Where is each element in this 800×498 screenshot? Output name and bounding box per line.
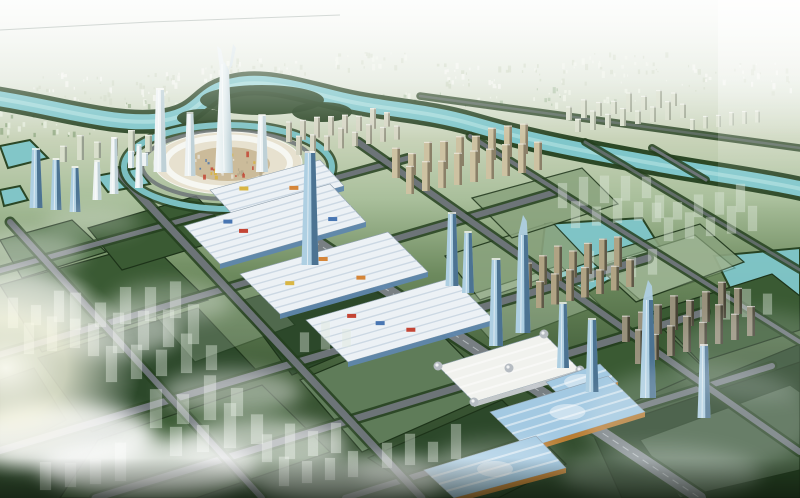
residential-slab-roof (581, 267, 589, 268)
residential-slab-roof (408, 153, 416, 154)
hall-roof-pattern (550, 404, 586, 420)
residential-slab-roof (686, 300, 694, 301)
distant-building (239, 171, 241, 174)
tower-roof (588, 318, 596, 320)
residential-slab-shade (427, 161, 430, 191)
distant-building (203, 175, 206, 180)
residential-slab-roof (470, 150, 478, 151)
cloud (44, 208, 140, 236)
tower-roof (305, 151, 316, 153)
residential-slab-shade (411, 166, 414, 194)
residential-slab-roof (614, 236, 622, 237)
residential-slab-roof (683, 316, 691, 317)
residential-slab-roof (486, 149, 494, 150)
residential-slab-shade (723, 282, 726, 318)
residential-slab-roof (596, 269, 604, 270)
residential-slab-shade (443, 161, 446, 188)
distant-building (199, 168, 201, 170)
ghost-building (558, 183, 567, 208)
residential-slab-shade (65, 146, 67, 162)
distant-building (213, 169, 214, 171)
hall-accent-sign (347, 314, 356, 318)
hall-accent-sign (328, 217, 337, 221)
hall-accent-sign (319, 257, 328, 261)
ghost-building (673, 202, 682, 219)
hall-accent-sign (356, 276, 365, 280)
ghost-building (206, 345, 217, 370)
residential-slab-shade (616, 266, 619, 291)
horizon-haze (0, 0, 800, 140)
ghost-building (579, 177, 588, 205)
residential-slab-roof (566, 269, 574, 270)
mall-dome-highlight (506, 365, 509, 368)
hall-accent-sign (239, 187, 248, 191)
cloud (162, 370, 302, 414)
residential-slab-shade (507, 144, 510, 176)
distant-building (208, 162, 210, 164)
residential-slab-roof (536, 281, 544, 282)
residential-slab-roof (734, 288, 742, 289)
distant-building (242, 174, 245, 178)
ghost-building (321, 321, 330, 349)
ghost-building (613, 198, 622, 223)
ghost-building (156, 350, 167, 376)
distant-building (231, 174, 233, 178)
residential-slab-shade (589, 243, 592, 274)
mall-dome-highlight (435, 363, 438, 366)
ghost-building (300, 332, 309, 352)
residential-slab-shade (656, 334, 659, 360)
hall-accent-sign (285, 281, 294, 285)
tower-roof (464, 231, 471, 233)
residential-slab-roof (60, 146, 67, 147)
tower-highlight (73, 168, 74, 212)
residential-slab-roof (424, 142, 432, 143)
residential-slab-shade (672, 325, 675, 356)
residential-slab-shade (541, 281, 544, 308)
mall-dome-highlight (471, 399, 474, 402)
ghost-building (706, 217, 715, 236)
distant-building (210, 172, 212, 175)
ghost-building (621, 176, 630, 201)
residential-slab-shade (556, 273, 559, 304)
residential-slab-roof (599, 239, 607, 240)
tower-highlight (561, 304, 562, 368)
tower-roof (559, 302, 566, 304)
residential-slab-roof (702, 291, 710, 292)
residential-slab-shade (99, 142, 101, 158)
distant-building (246, 152, 249, 158)
hall-accent-sign (223, 220, 232, 224)
residential-slab-shade (604, 239, 607, 271)
ghost-building (685, 212, 694, 238)
ghost-building (634, 202, 643, 220)
residential-slab-roof (534, 142, 542, 143)
residential-slab-shade (571, 269, 574, 301)
tower-roof (94, 160, 100, 162)
residential-slab-roof (440, 141, 448, 142)
ghost-building (694, 195, 703, 217)
ghost-building (150, 389, 162, 428)
residential-slab-shade (619, 236, 622, 267)
cloud (112, 282, 232, 322)
residential-slab-roof (670, 295, 678, 296)
residential-slab-shade (739, 288, 742, 314)
tower-highlight (113, 139, 114, 194)
residential-slab-roof (502, 144, 510, 145)
residential-slab-roof (622, 316, 630, 317)
residential-slab-shade (586, 267, 589, 298)
residential-slab-roof (569, 250, 577, 251)
distant-building (215, 176, 218, 180)
ghost-building (727, 206, 736, 233)
mall-dome-highlight (577, 367, 580, 370)
bottom-vignette (0, 458, 800, 498)
hall-accent-sign (376, 321, 385, 325)
tower-highlight (466, 233, 467, 293)
residential-slab-roof (128, 151, 134, 152)
ghost-building (571, 201, 580, 228)
tower-roof (492, 258, 501, 260)
residential-slab-shade (146, 153, 148, 166)
distant-building (197, 155, 199, 159)
tower-roof (32, 148, 40, 150)
hall-accent-sign (289, 186, 298, 190)
residential-slab-shade (631, 259, 634, 287)
residential-slab-roof (142, 153, 148, 154)
ghost-building (664, 218, 673, 241)
hall-accent-sign (406, 328, 415, 332)
residential-slab-roof (747, 306, 755, 307)
tower-highlight (54, 160, 55, 210)
distant-building (205, 159, 206, 162)
scene-canvas (0, 0, 800, 498)
residential-slab-shade (459, 153, 462, 185)
residential-slab-shade (659, 304, 662, 334)
residential-slab-roof (539, 255, 547, 256)
distant-building (237, 173, 238, 176)
residential-slab-roof (94, 142, 101, 143)
residential-slab-roof (718, 282, 726, 283)
residential-slab-roof (626, 259, 634, 260)
distant-building (211, 167, 214, 170)
residential-slab-roof (635, 329, 643, 330)
residential-slab-shade (675, 295, 678, 330)
residential-slab-shade (601, 269, 604, 294)
distant-building (238, 168, 239, 171)
residential-slab-roof (611, 266, 619, 267)
ghost-building (342, 329, 351, 347)
ghost-building (652, 203, 661, 222)
ghost-building (592, 207, 601, 226)
distant-building (235, 175, 236, 177)
residential-slab-shade (691, 300, 694, 326)
tower-roof (137, 144, 142, 146)
residential-slab-roof (422, 161, 430, 162)
masterplan-rendering (0, 0, 800, 498)
residential-slab-roof (584, 243, 592, 244)
residential-slab-shade (627, 316, 630, 342)
ghost-building (181, 334, 192, 373)
mall-dome-highlight (541, 331, 544, 334)
distant-building (233, 159, 234, 161)
residential-slab-shade (523, 143, 526, 173)
ghost-building (648, 249, 657, 274)
residential-slab-shade (475, 150, 478, 182)
tower-roof (448, 212, 456, 214)
hall-accent-sign (239, 229, 248, 233)
tower-roof (72, 166, 79, 168)
residential-slab-roof (654, 304, 662, 305)
residential-slab-roof (715, 304, 723, 305)
residential-slab-shade (491, 149, 494, 179)
residential-slab-roof (554, 246, 562, 247)
residential-slab-roof (518, 143, 526, 144)
residential-slab-roof (454, 153, 462, 154)
residential-slab-roof (551, 273, 559, 274)
residential-slab-shade (707, 291, 710, 322)
residential-slab-roof (667, 325, 675, 326)
residential-slab-shade (574, 250, 577, 277)
residential-slab-roof (406, 166, 414, 167)
residential-slab-roof (438, 161, 446, 162)
tower-roof (53, 158, 60, 160)
distant-building (253, 161, 255, 164)
ghost-building (642, 177, 651, 198)
residential-slab-shade (529, 263, 532, 288)
ghost-building (600, 176, 609, 203)
residential-slab-roof (392, 148, 400, 149)
tower-highlight (96, 162, 97, 200)
residential-slab-shade (539, 142, 542, 170)
residential-slab-shade (132, 151, 134, 168)
distant-building (252, 166, 254, 170)
distant-building (246, 161, 247, 163)
residential-slab-shade (397, 148, 400, 178)
residential-slab-shade (559, 246, 562, 281)
residential-slab-shade (544, 255, 547, 284)
